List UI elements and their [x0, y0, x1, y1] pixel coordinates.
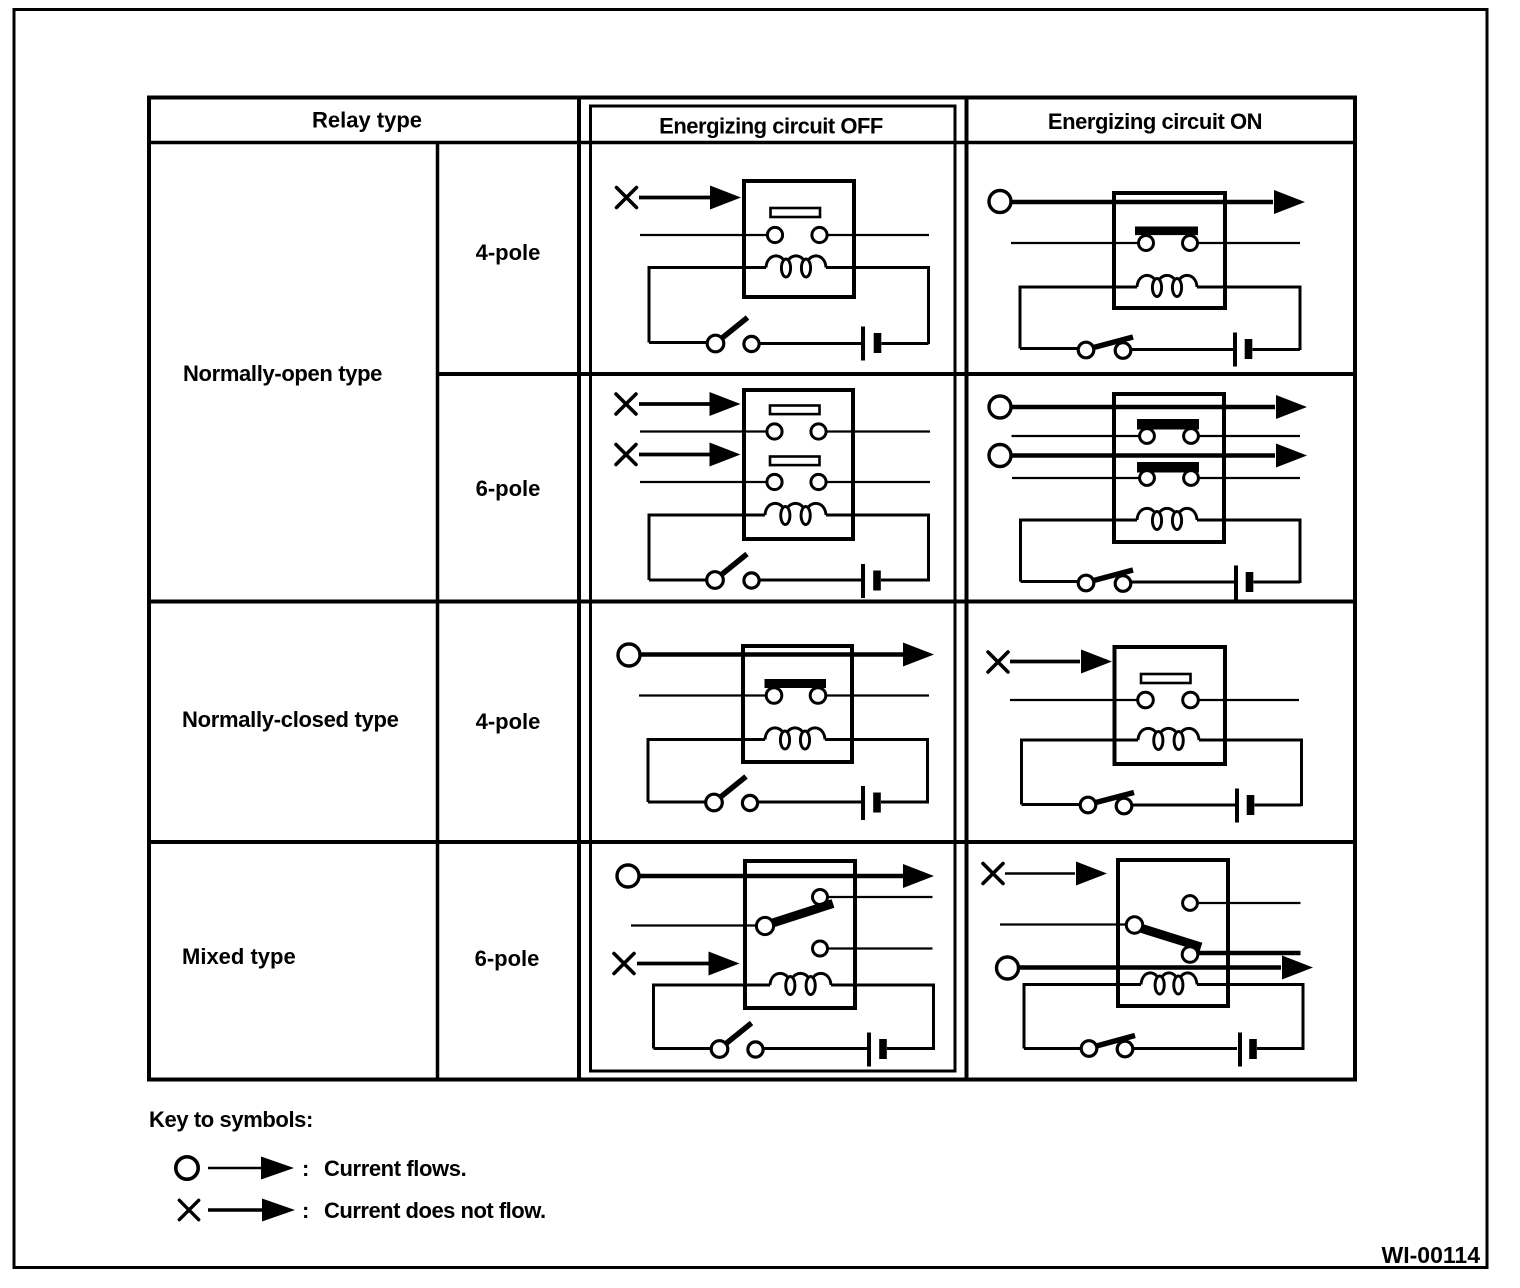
svg-text:6-pole: 6-pole: [476, 476, 541, 501]
svg-text::: :: [302, 1198, 309, 1223]
svg-text:Normally-closed type: Normally-closed type: [182, 707, 399, 732]
svg-text:Mixed type: Mixed type: [182, 944, 296, 969]
svg-text:4-pole: 4-pole: [476, 240, 541, 265]
svg-text:Relay type: Relay type: [312, 108, 422, 133]
svg-text:WI-00114: WI-00114: [1382, 1242, 1481, 1268]
svg-text:Key to symbols:: Key to symbols:: [149, 1107, 313, 1132]
svg-text:Energizing circuit ON: Energizing circuit ON: [1048, 109, 1262, 134]
svg-text:4-pole: 4-pole: [476, 709, 541, 734]
svg-text:Normally-open type: Normally-open type: [183, 361, 382, 386]
svg-text:Energizing circuit OFF: Energizing circuit OFF: [659, 114, 883, 139]
svg-text::: :: [302, 1156, 309, 1181]
svg-text:Current flows.: Current flows.: [324, 1156, 466, 1181]
svg-text:6-pole: 6-pole: [475, 946, 540, 971]
svg-text:Current does not flow.: Current does not flow.: [324, 1198, 546, 1223]
